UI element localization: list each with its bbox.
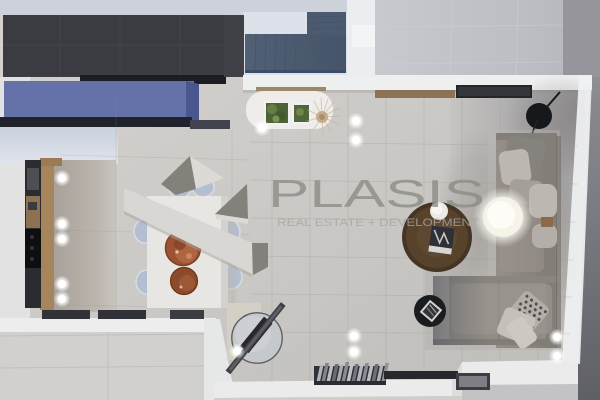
svg-text:REAL ESTATE + DEVELOPMENT: REAL ESTATE + DEVELOPMENT bbox=[277, 217, 479, 229]
svg-text:PLASIS: PLASIS bbox=[268, 173, 485, 216]
